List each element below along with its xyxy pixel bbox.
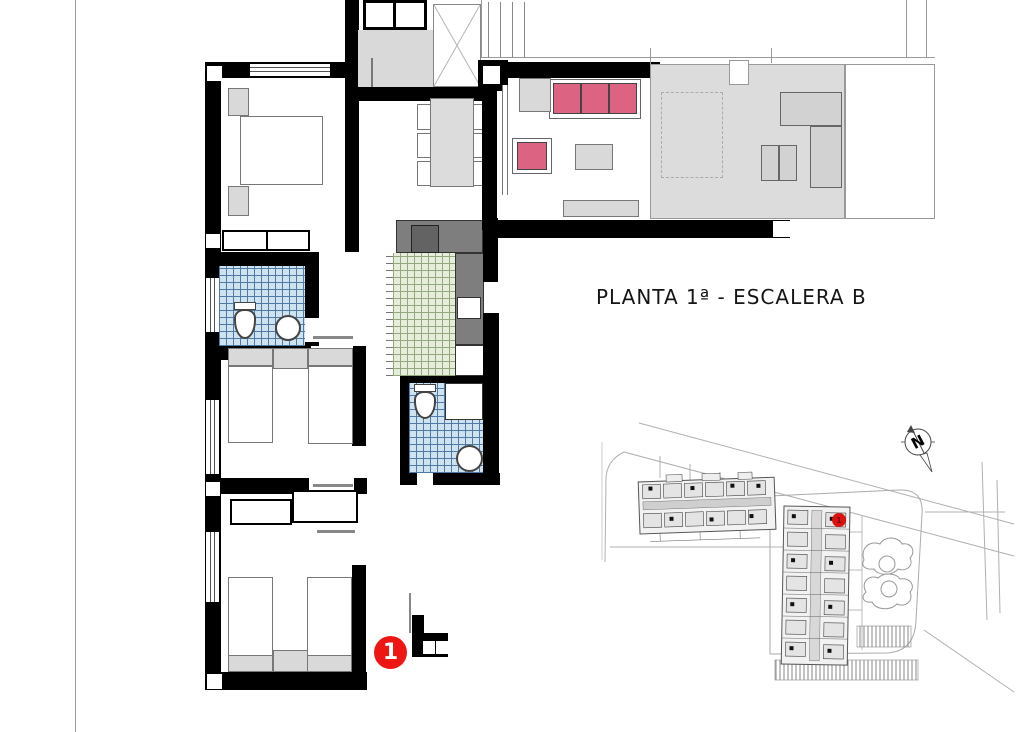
window-glazing: [210, 532, 211, 602]
terrace-door-opening: [729, 60, 749, 85]
window-glazing: [210, 278, 211, 332]
building-block-b: [781, 506, 850, 665]
north-compass: N: [901, 425, 935, 472]
glass-partition: [502, 85, 508, 195]
nightstand: [228, 88, 249, 116]
site-plan: 1 N: [594, 420, 1024, 710]
threshold-line: [409, 593, 411, 633]
elevator-cab: [358, 30, 434, 87]
building-block-a: [638, 471, 776, 542]
pillar: [206, 234, 220, 248]
wall-segment: [352, 360, 366, 446]
entry-door-opening: [483, 66, 500, 84]
outdoor-table: [779, 145, 797, 181]
wall-segment: [483, 220, 790, 238]
double-bed: [240, 116, 323, 185]
window: [206, 278, 219, 332]
window-glazing: [214, 400, 215, 474]
sofa: [553, 83, 637, 114]
window-glazing: [214, 532, 215, 602]
location-marker-number: 1: [836, 516, 842, 525]
shower-symbol: [445, 383, 483, 420]
outdoor-table: [761, 145, 779, 181]
sofa-seat-divider: [608, 83, 610, 114]
pergola-outline: [661, 92, 723, 178]
wall-segment: [483, 313, 499, 482]
single-bed: [228, 366, 273, 443]
page-border: [75, 0, 76, 732]
closet: [230, 499, 292, 525]
stair-tread: [524, 2, 525, 57]
stair-tread: [488, 2, 489, 57]
single-bed: [308, 366, 353, 444]
wall-segment: [400, 383, 409, 482]
nightstand: [273, 650, 308, 672]
kitchen-counter: [396, 220, 483, 253]
plan-title: PLANTA 1ª - ESCALERA B: [596, 285, 867, 309]
kitchen-sink-symbol: [457, 297, 481, 319]
pillar: [207, 66, 222, 81]
pillar: [773, 221, 790, 237]
window: [206, 532, 219, 602]
kitchen-tile-edge: [386, 255, 393, 376]
single-bed: [307, 577, 352, 657]
sliding-door-track: [313, 484, 353, 487]
roof-line: [481, 57, 935, 58]
pillar: [436, 641, 448, 654]
outdoor-sofa: [810, 126, 842, 188]
unit-number-badge: 1: [374, 636, 407, 669]
pergola-strip: [857, 626, 911, 647]
wall-segment: [215, 252, 315, 266]
sliding-door-track: [313, 336, 353, 339]
sofa-seat-divider: [580, 83, 582, 114]
window-glazing: [210, 400, 211, 474]
north-label: N: [908, 431, 928, 453]
roof-line: [650, 48, 651, 65]
coffee-table: [575, 144, 613, 170]
kitchen-tiles: [393, 253, 455, 376]
window-glazing: [250, 71, 330, 72]
nightstand: [273, 348, 308, 369]
window: [250, 64, 330, 76]
headboard: [308, 348, 353, 366]
wall-segment: [205, 672, 367, 690]
wall-segment: [345, 0, 359, 252]
dining-table: [430, 98, 474, 187]
roof-line: [906, 0, 907, 57]
cooktop-symbol: [411, 225, 439, 253]
adjacent-terrace: [845, 64, 935, 219]
side-table: [519, 78, 551, 112]
floor-plan-sheet: 1 PLANTA 1ª - ESCALERA B: [0, 0, 1024, 732]
window: [206, 400, 219, 474]
elevator-shaft: [433, 4, 481, 87]
sink-symbol: [456, 445, 483, 472]
wardrobe-divider: [266, 231, 268, 250]
tv-cabinet: [563, 200, 639, 217]
stair-tread: [512, 2, 513, 57]
sink-symbol: [275, 315, 301, 341]
fridge: [455, 345, 484, 376]
single-bed: [228, 577, 273, 657]
nightstand: [228, 186, 249, 216]
wall-segment: [505, 62, 660, 78]
window-glazing: [250, 67, 330, 68]
roof-line: [926, 0, 927, 57]
pool: [863, 538, 913, 609]
pillar: [206, 482, 220, 496]
wall-segment: [355, 635, 366, 672]
armchair: [517, 142, 547, 170]
door-opening: [417, 473, 433, 485]
stair-tread: [500, 2, 501, 57]
headboard: [228, 655, 273, 672]
wall-segment: [482, 85, 497, 230]
headboard: [228, 348, 273, 366]
staircase: [481, 0, 482, 58]
pillar: [207, 674, 222, 689]
headboard: [307, 655, 352, 672]
closet: [292, 490, 358, 523]
window-glazing: [214, 278, 215, 332]
outdoor-sofa: [780, 92, 842, 126]
roof-line: [771, 48, 772, 63]
pillar: [423, 641, 435, 654]
sliding-door-track: [317, 530, 355, 533]
elevator-door-divider: [393, 0, 396, 30]
